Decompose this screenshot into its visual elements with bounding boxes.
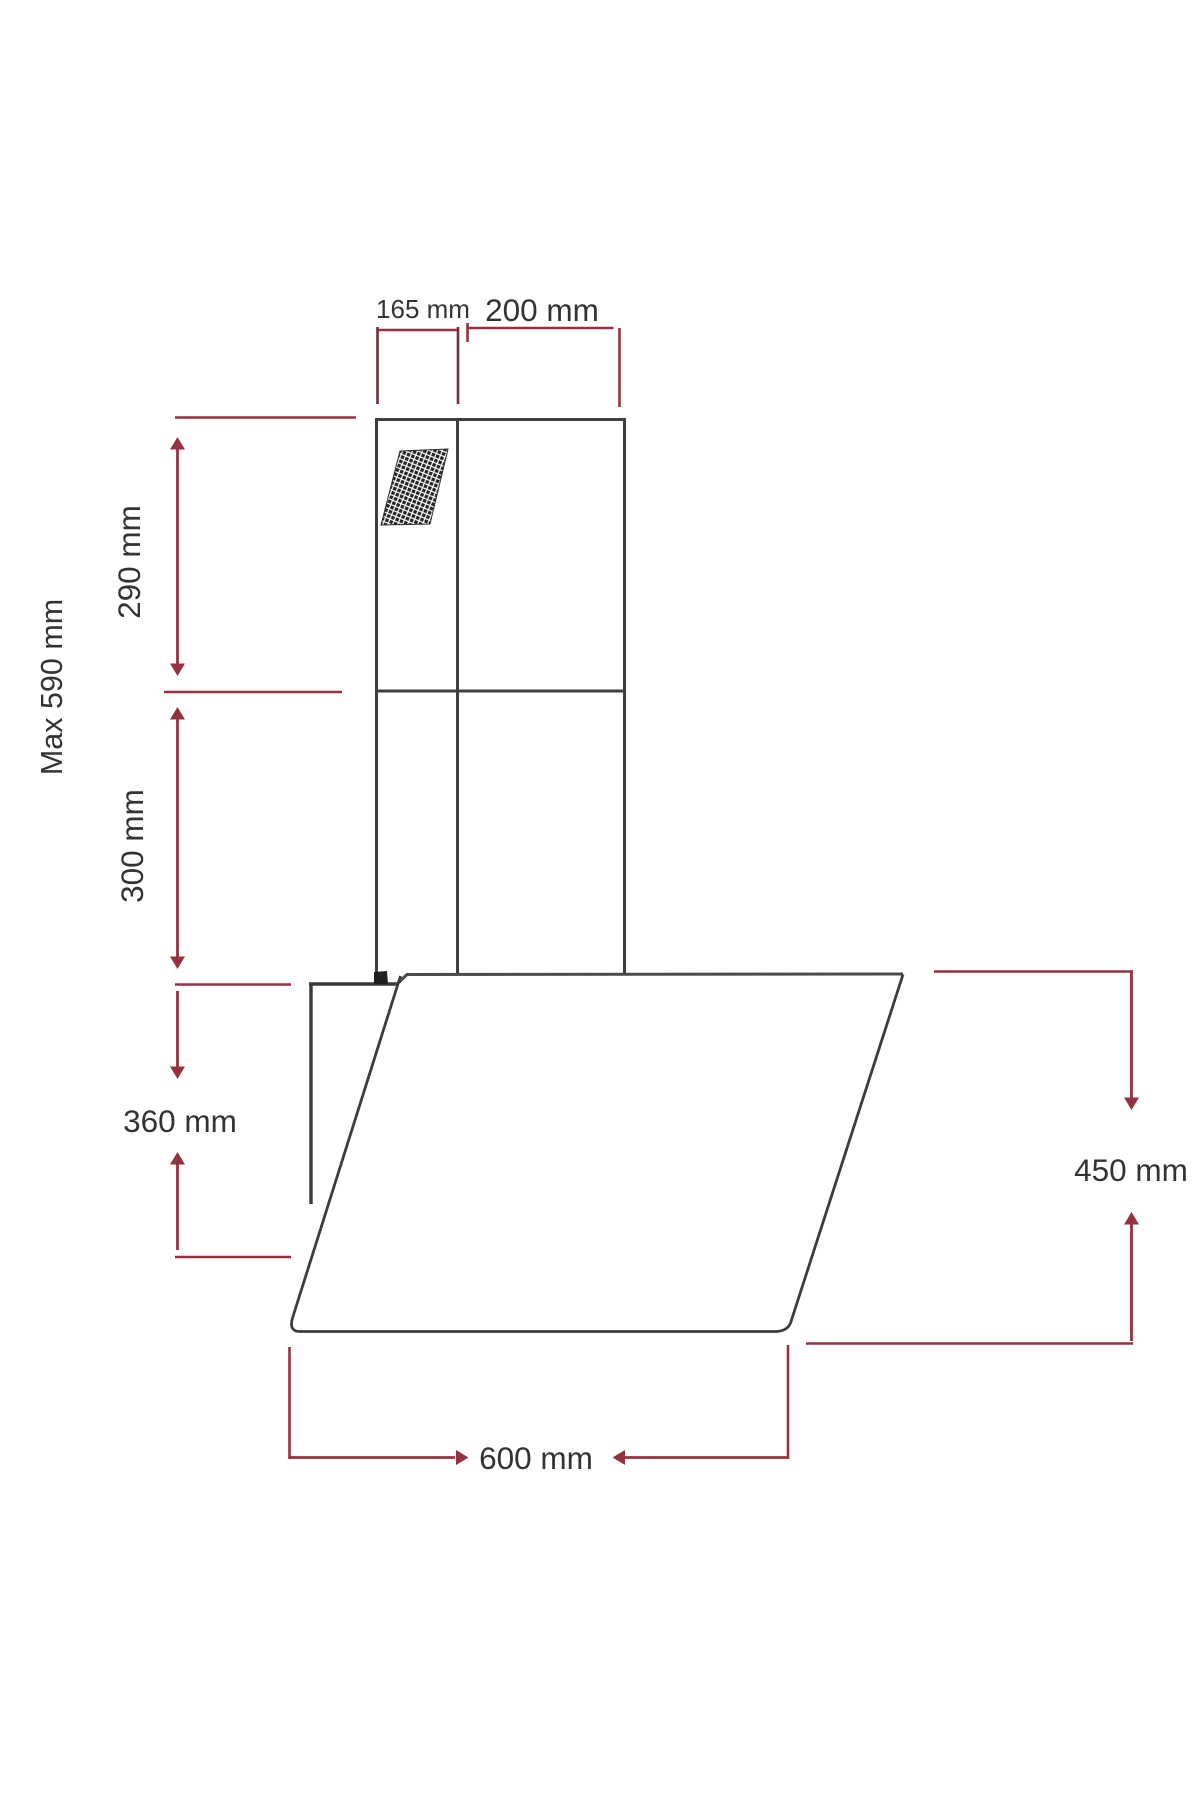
svg-text:200 mm: 200 mm: [485, 292, 599, 328]
svg-text:450 mm: 450 mm: [1074, 1152, 1188, 1188]
svg-text:290 mm: 290 mm: [111, 505, 147, 619]
svg-text:Max 590 mm: Max 590 mm: [35, 599, 69, 775]
svg-text:360 mm: 360 mm: [123, 1103, 237, 1139]
svg-text:300 mm: 300 mm: [114, 789, 150, 903]
svg-text:600 mm: 600 mm: [479, 1440, 593, 1476]
svg-text:165 mm: 165 mm: [376, 294, 470, 324]
